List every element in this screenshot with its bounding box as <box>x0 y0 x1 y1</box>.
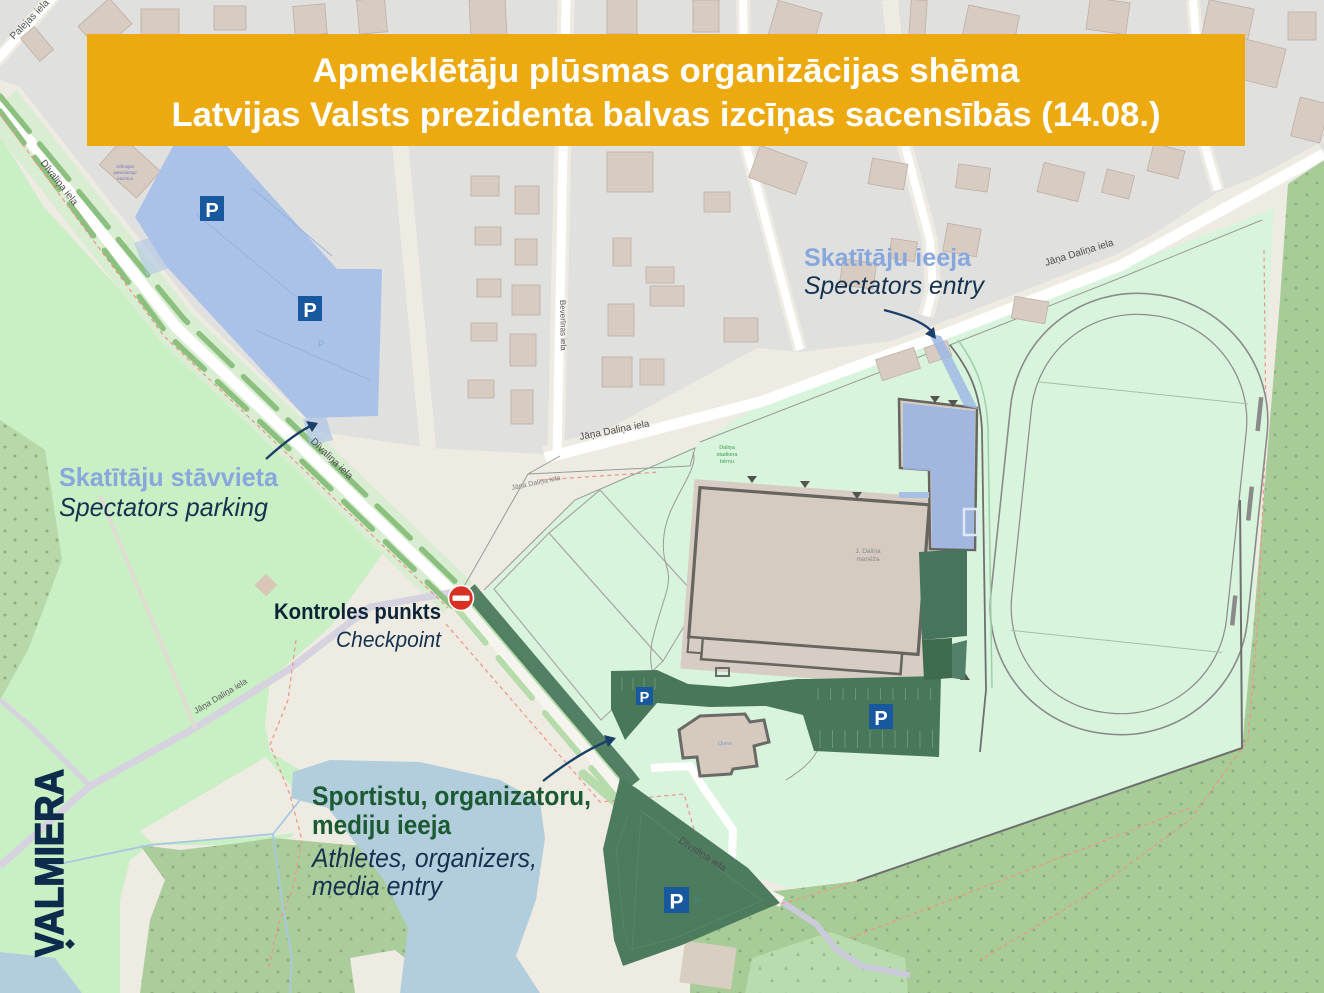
svg-text:bērnu: bērnu <box>720 459 734 465</box>
svg-text:Beverīnas iela: Beverīnas iela <box>558 300 568 351</box>
svg-text:Spectators entry: Spectators entry <box>804 272 985 300</box>
svg-text:media entry: media entry <box>312 871 443 901</box>
svg-text:Apmeklētāju plūsmas organizāci: Apmeklētāju plūsmas organizācijas shēma <box>313 52 1021 90</box>
svg-text:Spectators parking: Spectators parking <box>59 492 269 522</box>
svg-text:J. Daliņa: J. Daliņa <box>855 548 881 555</box>
svg-text:Skatītāju stāvvieta: Skatītāju stāvvieta <box>59 462 279 492</box>
svg-text:Latvijas Valsts prezidenta bal: Latvijas Valsts prezidenta balvas izcīņa… <box>172 96 1161 134</box>
svg-text:manēža: manēža <box>856 556 880 563</box>
svg-text:Kontroles punkts: Kontroles punkts <box>274 599 441 624</box>
svg-text:Skatītāju ieeja: Skatītāju ieeja <box>804 244 972 272</box>
svg-text:Athletes, organizers,: Athletes, organizers, <box>310 843 537 873</box>
svg-text:Sportistu, organizatoru,: Sportistu, organizatoru, <box>312 781 591 811</box>
svg-text:Checkpoint: Checkpoint <box>336 627 442 652</box>
svg-text:P: P <box>874 708 887 730</box>
svg-text:stadiona: stadiona <box>717 452 739 458</box>
svg-text:Jefimijas: Jefimijas <box>116 164 134 169</box>
svg-text:VALMIERA: VALMIERA <box>28 769 72 957</box>
svg-text:Daliņa: Daliņa <box>719 445 736 451</box>
svg-text:baznīca: baznīca <box>117 176 133 181</box>
svg-text:mediju ieeja: mediju ieeja <box>312 810 452 840</box>
svg-text:P: P <box>303 300 316 322</box>
svg-text:P: P <box>669 891 683 914</box>
svg-text:pareizticīgo: pareizticīgo <box>113 170 137 175</box>
svg-text:P: P <box>640 690 650 706</box>
svg-text:P: P <box>694 896 700 906</box>
svg-text:Quinx: Quinx <box>718 741 733 747</box>
svg-text:P: P <box>205 200 218 222</box>
svg-text:P: P <box>318 339 324 349</box>
